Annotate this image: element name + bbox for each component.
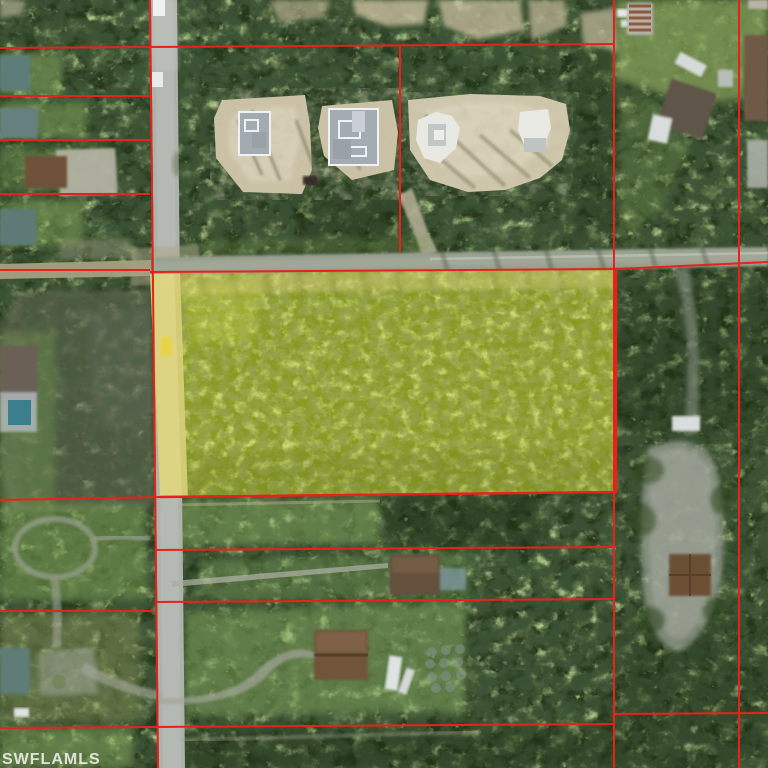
svg-text:SWFLAMLS: SWFLAMLS — [2, 751, 101, 768]
